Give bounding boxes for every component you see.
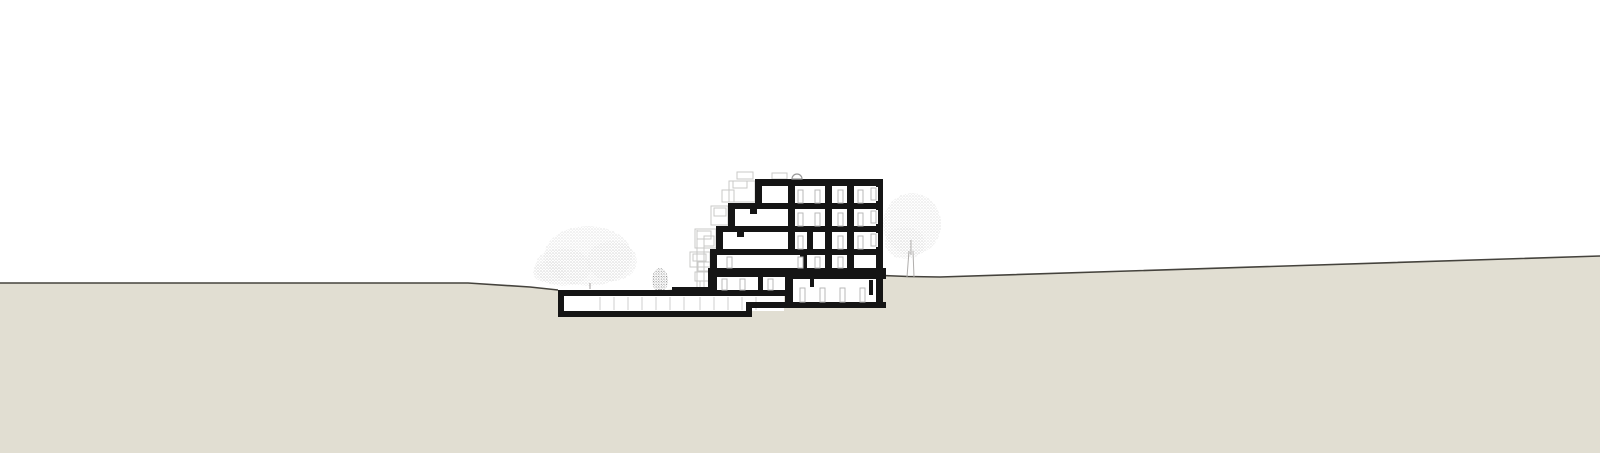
building-cut-structure-shape [746,302,886,308]
interior-door-frames-shape [740,279,745,290]
interior-door-frames-shape [798,236,803,249]
beyond-cut-elevation-shape [737,172,753,179]
interior-door-frames-shape [815,257,820,268]
interior-door-frames-shape [798,213,803,226]
tree-right [883,193,941,277]
building-cut-structure-shape [558,290,790,296]
tree-small-bush-shape [652,268,668,292]
beyond-cut-elevation-shape [714,208,726,216]
tree-small-bush [652,268,668,292]
building-cut-structure-shape [825,209,832,226]
building-cut-structure-shape [807,232,813,249]
interior-door-frames-shape [860,288,865,302]
building-cut-structure-shape [716,226,723,255]
building-cut-structure-shape [847,186,854,203]
beyond-cut-elevation-shape [722,190,734,202]
building-cut-structure-shape [788,186,795,203]
interior-door-frames-shape [815,190,820,203]
building-cut-structure-shape [728,203,735,232]
tree-right-shape [885,227,925,259]
building-cut-structure-shape [825,232,832,249]
tree-large-left-shape [587,241,637,281]
interior-door-frames-shape [858,236,863,249]
building-cut-structure-shape [710,249,883,255]
building-cut-structure-shape [847,209,854,226]
building-cut-structure-shape [847,232,854,249]
building-cut-structure-shape [737,232,744,237]
interior-door-frames-shape [858,190,863,203]
building-cut-structure-shape [708,268,714,296]
interior-door-frames-shape [858,213,863,226]
interior-door-frames-shape [798,257,803,268]
building-cut-structure-shape [810,279,814,287]
building-cut-structure-shape [728,203,883,209]
interior-door-frames-shape [838,213,843,226]
beyond-cut-elevation-shape [733,181,747,188]
building-cut-structure-shape [746,302,752,317]
building-cut-structure-shape [558,311,752,317]
interior-door-frames-shape [815,213,820,226]
building-cut-structure-shape [847,255,854,268]
building-cut-structure-shape [758,277,763,290]
building-cut-structure-shape [790,274,886,279]
building-cut-structure-shape [755,179,883,186]
building-cut-structure-shape [825,255,832,268]
interior-door-frames-shape [768,279,773,290]
building-cut-structure-shape [825,186,832,203]
interior-door-frames-shape [727,257,732,268]
building-cut-structure-shape [755,179,762,209]
interior-door-frames-shape [840,288,845,302]
tree-large-left-shape [533,261,565,283]
section-drawing-svg [0,0,1600,453]
interior-door-frames-shape [798,190,803,203]
interior-door-frames-shape [838,257,843,268]
interior-door-frames-shape [820,288,825,302]
building-cut-structure-shape [716,226,883,232]
right-facade-windows-shape [869,280,873,295]
beyond-cut-elevation-shape [704,236,714,246]
tree-large-left [533,226,637,289]
building-cut-structure-shape [788,209,795,226]
building-cut-structure-shape [750,209,757,214]
building-cut-structure-shape [788,232,795,249]
building-cut-structure-shape [785,277,793,302]
roof-skylight [792,174,802,179]
interior-door-frames-shape [800,288,805,302]
architectural-section-drawing [0,0,1600,453]
roof-skylight-shape [792,174,802,179]
beyond-cut-elevation-shape [772,173,787,179]
interior-door-frames-shape [722,279,727,290]
interior-door-frames-shape [838,190,843,203]
interior-door-frames-shape [838,236,843,249]
